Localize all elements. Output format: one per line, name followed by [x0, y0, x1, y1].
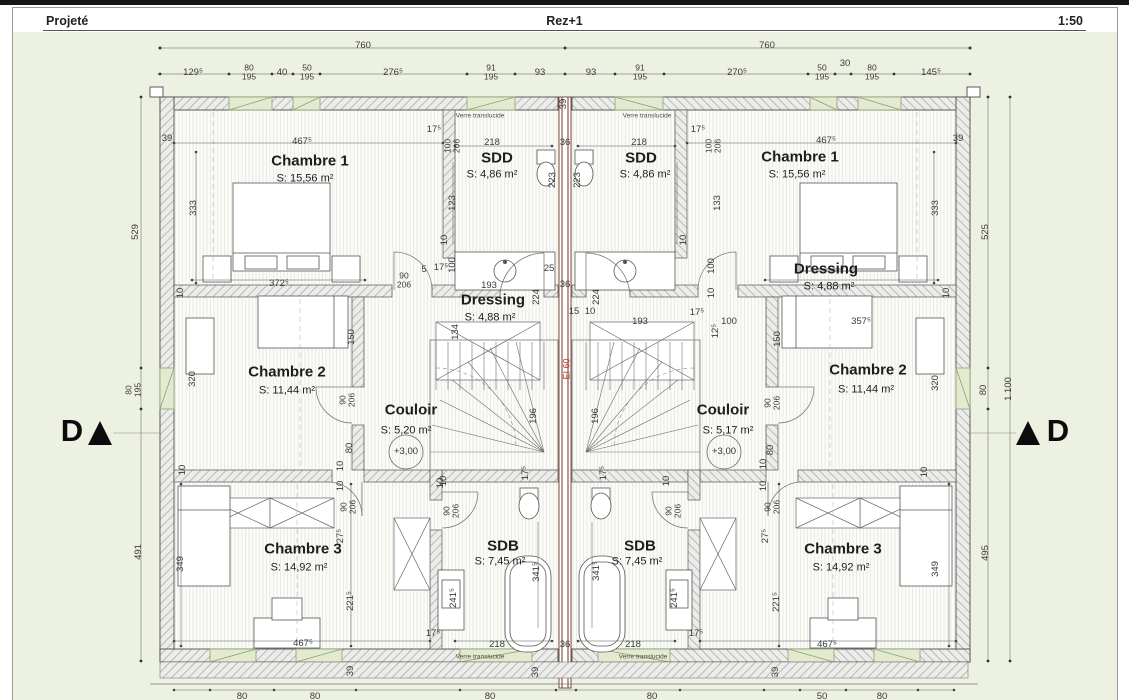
section-marker-d-left: D: [61, 413, 83, 449]
party-wall: [559, 97, 571, 688]
section-arrow-right: [1016, 421, 1040, 445]
dwelling-unit-mirrored: [572, 87, 980, 662]
floor-plan-drawing: [0, 0, 1129, 700]
floor-plan-page: Projeté Rez+1 1:50: [0, 0, 1129, 700]
section-arrow-left: [88, 421, 112, 445]
section-marker-d-right: D: [1047, 413, 1069, 449]
dwelling-unit: [150, 87, 558, 662]
